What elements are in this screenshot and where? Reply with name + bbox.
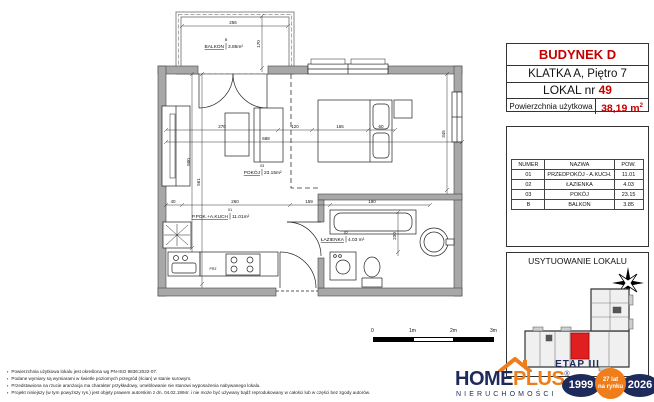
sofa	[254, 108, 283, 162]
svg-text:256: 256	[229, 20, 237, 25]
svg-text:270: 270	[218, 124, 226, 129]
table	[225, 113, 249, 156]
svg-text:02: 02	[344, 231, 348, 235]
usable-area-row: Powierzchnia użytkowa 38,19 m2	[507, 99, 648, 114]
room-area: 23.15	[614, 190, 643, 200]
label-hall: 01 P.POK.+A.KUCH 11.01m²	[192, 208, 250, 220]
window-top	[308, 59, 388, 74]
svg-text:POKÓJ: POKÓJ	[244, 169, 261, 176]
svg-text:4.03 m²: 4.03 m²	[348, 237, 365, 243]
svg-text:P.POK.+A.KUCH: P.POK.+A.KUCH	[192, 214, 229, 220]
svg-text:60: 60	[378, 124, 384, 129]
table-row: 01 PRZEDPOKÓJ - A.KUCH. 11.01	[512, 170, 643, 180]
scale-bar: 0 1m 2m 3m	[366, 328, 501, 346]
wardrobe	[162, 106, 190, 186]
washbasin	[420, 228, 454, 256]
room-num: B	[512, 200, 545, 210]
disclaimer-item: Przedstawiona na rzucie aranżacja ma cha…	[7, 382, 452, 389]
window-right	[452, 92, 462, 142]
fridge	[163, 222, 191, 248]
svg-text:260: 260	[231, 199, 239, 204]
scale-tick-2m: 2m	[450, 328, 457, 334]
svg-text:159: 159	[305, 199, 313, 204]
nightstand	[394, 100, 412, 118]
table-header-row: NUMER NAZWA POW.	[512, 160, 643, 170]
room-area: 11.01	[614, 170, 643, 180]
apartment-floor-plan: 270 120 165 60 688 500 561 345 40 260 15…	[0, 0, 500, 360]
scale-tick-0: 0	[371, 328, 374, 334]
table-row: 03 POKÓJ 23.15	[512, 190, 643, 200]
unit-label: LOKAL nr	[543, 83, 599, 97]
toilet	[362, 257, 382, 287]
annex-boundary-line	[291, 74, 318, 188]
room-num: 02	[512, 180, 545, 190]
area-label: Powierzchnia użytkowa	[507, 99, 596, 114]
room-num: 03	[512, 190, 545, 200]
disclaimer-item: Powierzchnia użytkowa lokalu jest określ…	[7, 368, 452, 375]
walls	[158, 66, 462, 296]
balcony-door	[199, 74, 267, 108]
svg-text:165: 165	[336, 124, 344, 129]
logo-wordmark: HOMEPLUS®	[455, 368, 569, 391]
floor-plan-sheet: { "info_panel": { "building": "BUDYNEK D…	[0, 0, 654, 402]
svg-text:01: 01	[228, 208, 232, 212]
svg-text:190: 190	[368, 199, 376, 204]
scale-bar-segments	[373, 337, 494, 342]
col-numer: NUMER	[512, 160, 545, 170]
scale-tick-3m: 3m	[490, 328, 497, 334]
col-nazwa: NAZWA	[545, 160, 614, 170]
logo-home: HOME	[455, 368, 513, 390]
room-name: BALKON	[545, 200, 614, 210]
svg-text:BALKON: BALKON	[205, 44, 225, 50]
building-title: BUDYNEK D	[507, 44, 648, 66]
unit-number: 49	[599, 83, 612, 97]
room-area: 4.03	[614, 180, 643, 190]
svg-text:11.01m²: 11.01m²	[232, 214, 250, 220]
area-value: 38,19 m2	[596, 99, 648, 114]
washing-machine	[330, 252, 356, 280]
svg-text:40: 40	[170, 199, 176, 204]
room-name: ŁAZIENKA	[545, 180, 614, 190]
kitchen-sink	[168, 252, 200, 276]
label-room: 03 POKÓJ 23.15m²	[244, 164, 282, 176]
svg-text:B: B	[225, 38, 228, 42]
location-title: USYTUOWANIE LOKALU	[507, 256, 648, 266]
unit-info-card: BUDYNEK D KLATKA A, Piętro 7 LOKAL nr 49…	[506, 43, 649, 112]
svg-text:230: 230	[392, 232, 397, 240]
svg-text:120: 120	[291, 124, 299, 129]
svg-text:561: 561	[196, 178, 201, 186]
badge-line2: na rynku	[595, 384, 626, 391]
badge-line1: 27 lat	[595, 377, 626, 384]
disclaimer-item: Podane wymiary są wymiarami w świetle po…	[7, 375, 452, 382]
entry-door	[276, 252, 318, 291]
table-row: 02 ŁAZIENKA 4.03	[512, 180, 643, 190]
svg-text:345: 345	[441, 130, 446, 138]
logo-plus: PLUS	[513, 368, 564, 390]
unit-number-row: LOKAL nr 49	[507, 83, 648, 99]
label-balcony: B BALKON 3.85m²	[205, 38, 244, 50]
svg-text:03: 03	[260, 164, 264, 168]
col-pow: POW.	[614, 160, 643, 170]
logo-subtitle: NIERUCHOMOŚCI	[456, 391, 557, 398]
stove	[226, 254, 260, 275]
room-name: POKÓJ	[545, 190, 614, 200]
label-stove: PRZ	[210, 267, 218, 271]
svg-text:170: 170	[256, 40, 261, 48]
svg-text:500: 500	[186, 158, 191, 166]
scale-tick-1m: 1m	[409, 328, 416, 334]
room-name: PRZEDPOKÓJ - A.KUCH.	[545, 170, 614, 180]
badge-anniversary: 27 lat na rynku	[595, 368, 626, 399]
table-row: B BALKON 3.85	[512, 200, 643, 210]
svg-text:ŁAZIENKA: ŁAZIENKA	[321, 237, 345, 243]
rooms-table: NUMER NAZWA POW. 01 PRZEDPOKÓJ - A.KUCH.…	[511, 159, 643, 210]
svg-text:23.15m²: 23.15m²	[264, 170, 282, 176]
bathroom-door	[287, 222, 321, 256]
room-area: 3.85	[614, 200, 643, 210]
highlighted-unit	[571, 333, 589, 359]
staircase-floor: KLATKA A, Piętro 7	[507, 66, 648, 83]
dimension-lines	[164, 14, 464, 288]
disclaimer-item: Projekt niniejszy (w tym powyższy rys.) …	[7, 389, 452, 396]
svg-text:688: 688	[262, 136, 270, 141]
rooms-table-card: NUMER NAZWA POW. 01 PRZEDPOKÓJ - A.KUCH.…	[506, 126, 649, 247]
disclaimer-list: Powierzchnia użytkowa lokalu jest określ…	[7, 368, 452, 396]
bed	[318, 100, 392, 162]
svg-text:3.85m²: 3.85m²	[228, 44, 243, 50]
room-num: 01	[512, 170, 545, 180]
